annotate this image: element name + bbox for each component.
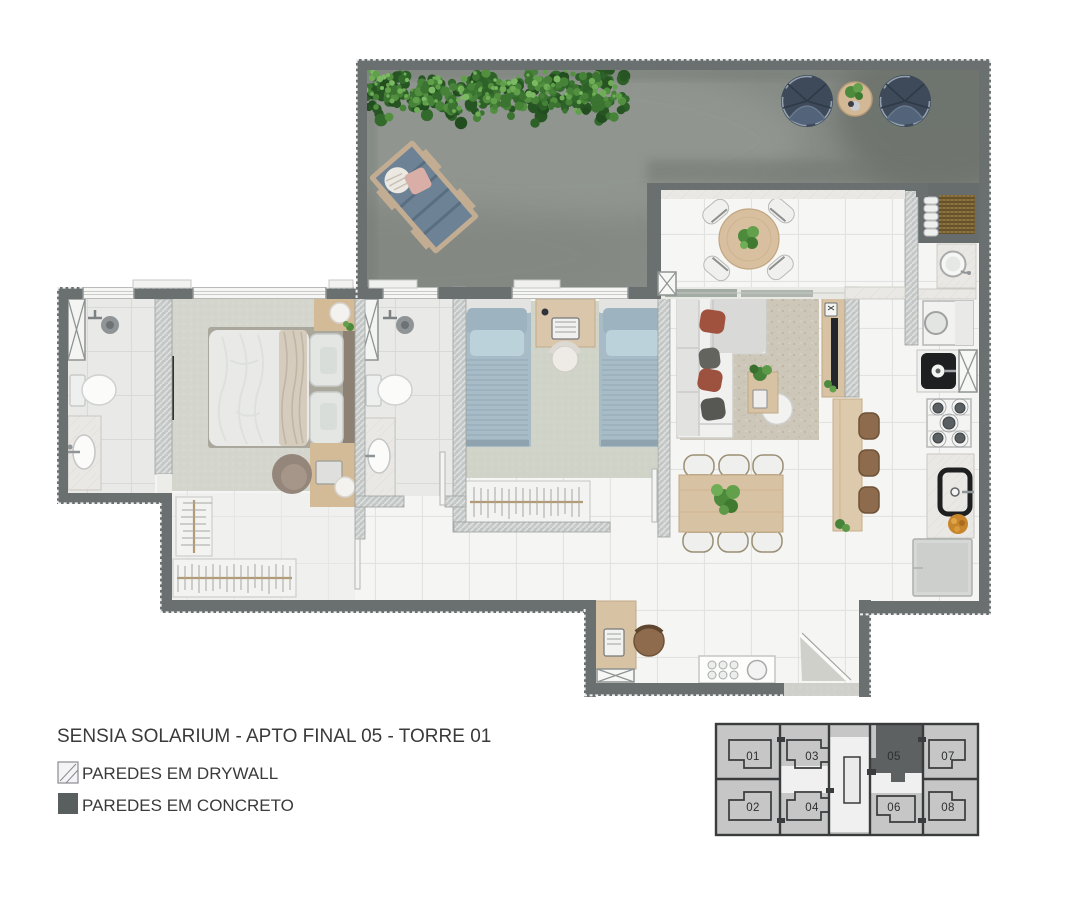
svg-text:PAREDES EM DRYWALL: PAREDES EM DRYWALL <box>82 764 278 783</box>
svg-text:07: 07 <box>941 751 955 763</box>
svg-text:08: 08 <box>941 802 955 814</box>
svg-text:01: 01 <box>746 751 760 763</box>
svg-text:04: 04 <box>805 802 819 814</box>
svg-text:03: 03 <box>805 751 819 763</box>
svg-text:05: 05 <box>887 751 901 763</box>
svg-text:PAREDES EM CONCRETO: PAREDES EM CONCRETO <box>82 796 294 815</box>
svg-text:SENSIA SOLARIUM - APTO FINAL 0: SENSIA SOLARIUM - APTO FINAL 05 - TORRE … <box>57 726 491 747</box>
svg-text:06: 06 <box>887 802 901 814</box>
svg-text:02: 02 <box>746 802 760 814</box>
